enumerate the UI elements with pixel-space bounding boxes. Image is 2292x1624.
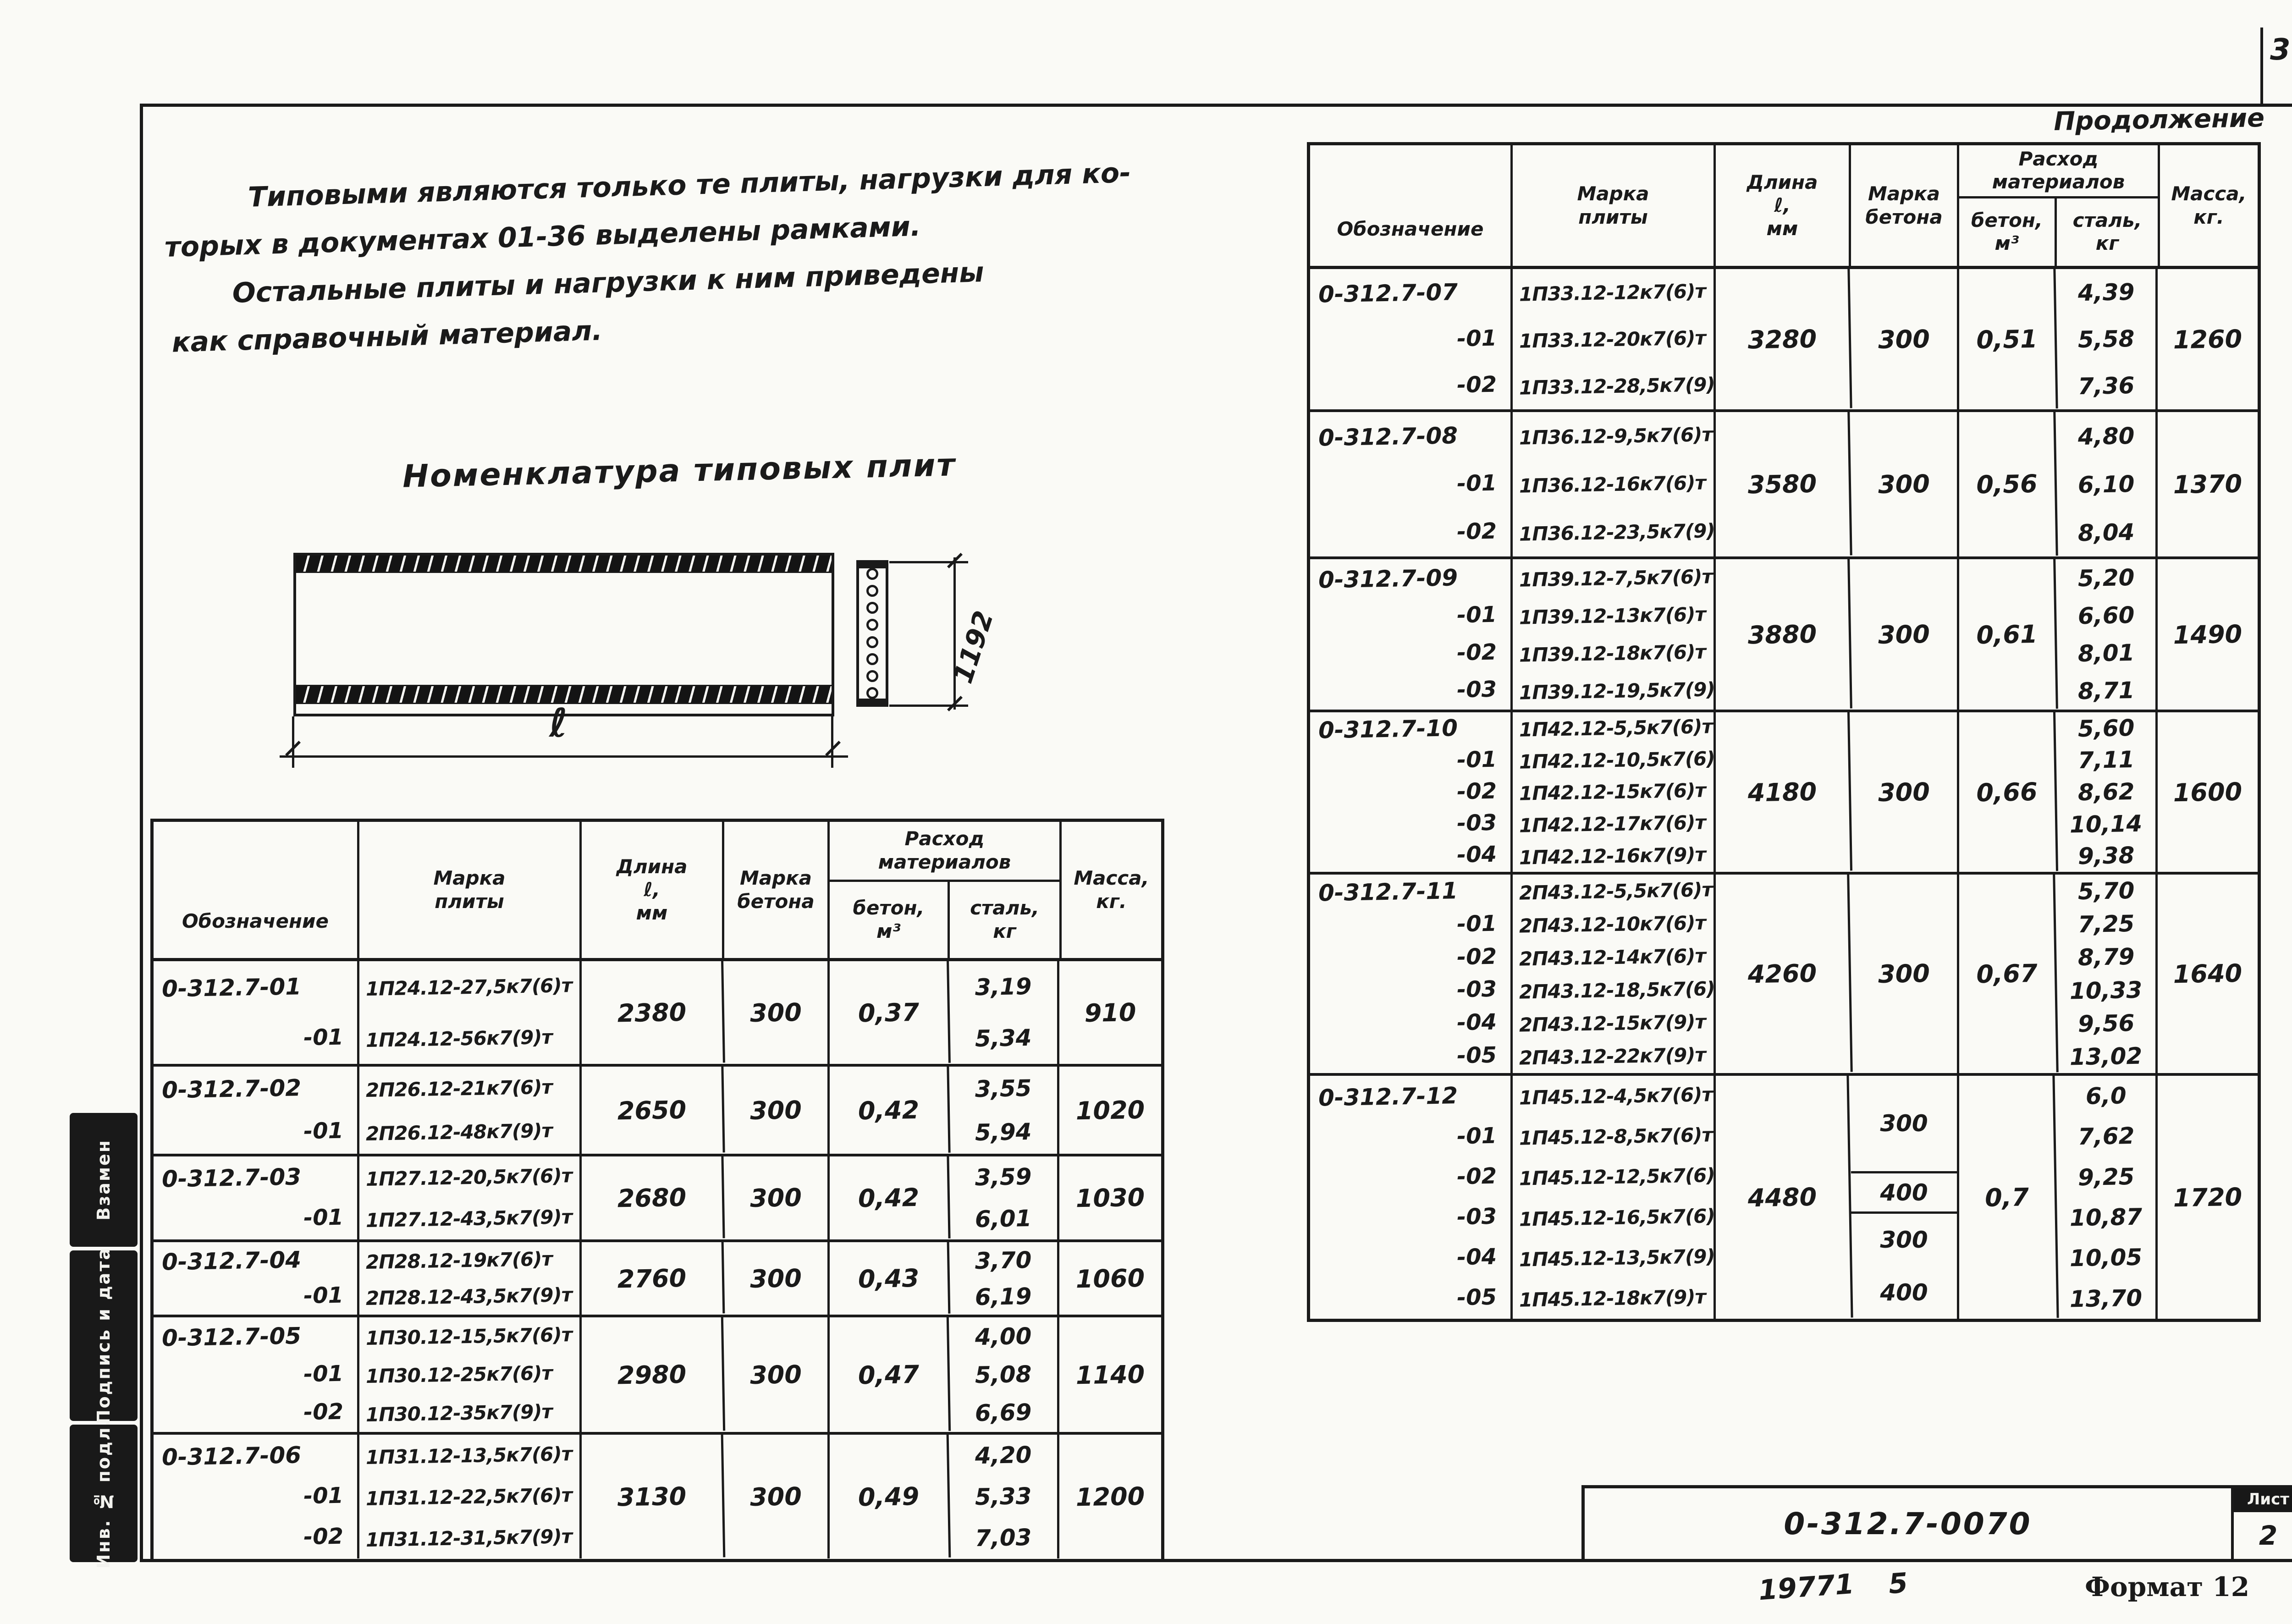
steel-value: 9,56 [2077, 1010, 2134, 1037]
steel-value: 4,80 [2077, 422, 2134, 450]
steel-value: 5,08 [975, 1361, 1032, 1388]
length-cell: 4260 [1714, 873, 1853, 1074]
hollow-core [866, 602, 878, 614]
plate-mark: 2П43.12-18,5к7(6)т [1513, 977, 1713, 1003]
mass-cell: 910 [1058, 960, 1162, 1065]
header-line: бетон, [1971, 209, 2043, 232]
plate-mark: 2П26.12-48к7(9)т [359, 1119, 579, 1145]
concrete-grade-value: 300 [724, 1067, 828, 1154]
mark-cell: 1П30.12-15,5к7(6)т1П30.12-25к7(6)т1П30.1… [359, 1317, 582, 1432]
mark-header: Маркаплиты [359, 822, 582, 958]
format-label: Формат 12 [2085, 1571, 2249, 1602]
plate-mark: 1П42.12-10,5к7(6)т [1513, 747, 1713, 773]
header-line: кг. [1096, 890, 1126, 913]
steel-value: 5,58 [2077, 325, 2134, 353]
header-line: м³ [1995, 232, 2019, 255]
mark-cell: 1П45.12-4,5к7(6)т1П45.12-8,5к7(6)т1П45.1… [1513, 1076, 1716, 1319]
steel-value: 9,38 [2077, 842, 2134, 870]
extension-line [889, 705, 968, 707]
steel-cell: 4,806,108,04 [2057, 412, 2158, 556]
header-line: сталь, [970, 897, 1039, 919]
header-line: Марка [1868, 182, 1940, 205]
designation-cell: 0-312.7-07-01-02 [1310, 269, 1513, 409]
steel-subheader: сталь,кг [2057, 198, 2158, 266]
designation-suffix: -01 [1310, 910, 1510, 940]
steel-value: 7,11 [2077, 746, 2134, 774]
plates-table-left: Обозначение Маркаплиты Длинаℓ,мм Маркабе… [150, 819, 1164, 1562]
length-cell: 3280 [1714, 268, 1852, 410]
mark-cell: 1П27.12-20,5к7(6)т1П27.12-43,5к7(9)т [359, 1156, 582, 1239]
header-line: Расход [905, 827, 985, 850]
concrete-grade-cell: 300 [1851, 712, 1959, 872]
hatch-band-top [296, 556, 832, 573]
plates-table-right: Обозначение Маркаплиты Длинаℓ,мм Маркабе… [1307, 142, 2261, 1322]
steel-cell: 3,555,94 [950, 1067, 1059, 1154]
steel-value: 13,02 [2070, 1042, 2143, 1070]
plate-mark: 1П42.12-16к7(9)т [1513, 843, 1713, 869]
concrete-grade-cell: 300 [1851, 875, 1959, 1073]
hollow-core [866, 636, 878, 648]
concrete-volume-cell: 0,51 [1958, 268, 2058, 410]
slab-plan-view [293, 553, 834, 716]
concrete-grade-value: 300 [1851, 412, 1958, 556]
plate-mark: 2П28.12-19к7(6)т [359, 1247, 579, 1273]
designation-cell: 0-312.7-04-01 [154, 1242, 359, 1315]
designation-suffix: -05 [1310, 1284, 1510, 1313]
mass-cell: 1200 [1058, 1434, 1163, 1559]
plate-mark: 2П43.12-14к7(6)т [1513, 944, 1713, 970]
plate-mark: 1П27.12-20,5к7(6)т [359, 1164, 579, 1190]
plate-row: 0-312.7-04-01 2П28.12-19к7(6)т2П28.12-43… [154, 1242, 1161, 1317]
sheet-number: 2 [2234, 1512, 2292, 1559]
steel-cell: 6,07,629,2510,8710,0513,70 [2057, 1076, 2158, 1319]
designation-suffix: -01 [1310, 601, 1510, 631]
concrete-volume-cell: 0,37 [829, 960, 951, 1065]
concrete-grade-value: 400 [1851, 1173, 1957, 1214]
designation-cell: 0-312.7-01-01 [154, 961, 359, 1064]
header-line: Марка [740, 867, 812, 890]
plate-mark: 1П27.12-43,5к7(9)т [359, 1206, 579, 1232]
margin-stamp-inventory: Инв. № подл. [70, 1425, 138, 1562]
mass-cell: 1600 [2156, 711, 2259, 873]
concrete-volume-cell: 0,67 [1957, 874, 2059, 1074]
mass-cell: 1140 [1058, 1316, 1162, 1433]
concrete-grade-value: 300 [1851, 1214, 1957, 1266]
plate-row: 0-312.7-12-01-02-03-04-05 1П45.12-4,5к7(… [1310, 1076, 2258, 1319]
plate-row: 0-312.7-02-01 2П26.12-21к7(6)т2П26.12-48… [154, 1067, 1161, 1156]
designation-cell: 0-312.7-03-01 [154, 1156, 359, 1239]
designation-suffix: -01 [1310, 470, 1510, 500]
mass-cell: 1260 [2156, 268, 2259, 410]
concrete-volume-cell: 0,42 [829, 1066, 950, 1155]
concrete-grade-cell: 300 [724, 1067, 830, 1154]
plate-row: 0-312.7-01-01 1П24.12-27,5к7(6)т1П24.12-… [154, 961, 1161, 1067]
mass-header: Масса,кг. [1062, 822, 1161, 958]
designation-cell: 0-312.7-05-01-02 [154, 1317, 359, 1432]
mark-cell: 1П33.12-12к7(6)т1П33.12-20к7(6)т1П33.12-… [1513, 269, 1716, 409]
concrete-volume-cell: 0,49 [829, 1434, 951, 1560]
concrete-volume-cell: 0,61 [1958, 558, 2058, 710]
concrete-grade-value: 300 [724, 961, 828, 1064]
plate-mark: 1П45.12-4,5к7(6)т [1513, 1083, 1713, 1109]
mass-cell: 1640 [2156, 874, 2259, 1074]
designation-value: 0-312.7-06 [154, 1441, 357, 1471]
header-line: Марка [1577, 182, 1649, 205]
designation-cell: 0-312.7-09-01-02-03 [1310, 559, 1513, 710]
steel-value: 6,60 [2077, 602, 2134, 629]
designation-suffix: -03 [1310, 676, 1510, 705]
mark-cell: 1П42.12-5,5к7(6)т1П42.12-10,5к7(6)т1П42.… [1513, 712, 1716, 872]
mark-cell: 1П39.12-7,5к7(6)т1П39.12-13к7(6)т1П39.12… [1513, 559, 1716, 710]
designation-suffix: -01 [154, 1282, 357, 1311]
steel-cell: 3,195,34 [950, 961, 1059, 1064]
plate-row: 0-312.7-10-01-02-03-04 1П42.12-5,5к7(6)т… [1310, 712, 2258, 875]
hollow-core [866, 687, 878, 699]
length-cell: 2760 [581, 1241, 725, 1316]
plate-mark: 2П26.12-21к7(6)т [359, 1075, 579, 1101]
steel-value: 6,01 [975, 1205, 1032, 1233]
header-line: ℓ, [1774, 194, 1791, 217]
extension-line [831, 716, 833, 768]
steel-value: 8,71 [2077, 677, 2134, 705]
consumption-subheaders: бетон,м³ сталь,кг [830, 882, 1059, 958]
hollow-core [866, 670, 878, 682]
mass-cell: 1060 [1059, 1241, 1162, 1316]
steel-value: 3,19 [975, 973, 1032, 1001]
header-line: Расход [2019, 148, 2099, 171]
length-dimension-label: ℓ [549, 700, 568, 746]
steel-value: 6,10 [2077, 470, 2134, 498]
header-line: ℓ, [644, 878, 660, 901]
steel-value: 6,69 [975, 1399, 1032, 1426]
header-line: Масса, [1074, 867, 1149, 890]
plate-mark: 1П31.12-31,5к7(9)т [359, 1525, 579, 1551]
mark-cell: 2П28.12-19к7(6)т2П28.12-43,5к7(9)т [359, 1242, 582, 1315]
steel-value: 5,33 [975, 1483, 1032, 1510]
designation-value: 0-312.7-05 [154, 1321, 357, 1352]
concrete-grade-cell: 300 [1851, 559, 1959, 710]
plate-mark: 1П31.12-22,5к7(6)т [359, 1483, 579, 1509]
designation-suffix: -01 [154, 1360, 357, 1390]
designation-suffix: -01 [154, 1118, 357, 1147]
notes-paragraph: Типовыми являются только те плиты, нагру… [163, 145, 1282, 367]
plate-row: 0-312.7-07-01-02 1П33.12-12к7(6)т1П33.12… [1310, 269, 2258, 412]
plate-mark: 1П45.12-18к7(9)т [1513, 1285, 1713, 1311]
plate-mark: 1П45.12-12,5к7(6)т [1513, 1164, 1713, 1190]
header-line: бетона [1865, 206, 1942, 229]
header-line: мм [1767, 217, 1798, 240]
plate-mark: 1П30.12-25к7(6)т [359, 1361, 579, 1387]
table-header-row: Обозначение Маркаплиты Длинаℓ,мм Маркабе… [1310, 145, 2258, 269]
plate-mark: 1П24.12-56к7(9)т [359, 1025, 579, 1051]
concrete-subheader: бетон,м³ [1959, 198, 2057, 266]
concrete-subheader: бетон,м³ [830, 882, 950, 958]
concrete-grade-header: Маркабетона [1851, 145, 1959, 266]
designation-suffix: -01 [154, 1482, 357, 1512]
steel-value: 10,87 [2070, 1204, 2143, 1232]
hollow-core [866, 619, 878, 631]
designation-cell: 0-312.7-12-01-02-03-04-05 [1310, 1076, 1513, 1319]
concrete-grade-value: 400 [1851, 1266, 1957, 1319]
plate-mark: 1П33.12-28,5к7(9)т [1513, 373, 1713, 399]
title-block: 0-312.7-0070 Лист 2 [1581, 1485, 2292, 1562]
header-line: бетона [737, 890, 814, 913]
length-header: Длинаℓ,мм [582, 822, 724, 958]
designation-suffix: -03 [1310, 1203, 1510, 1233]
mass-cell: 1370 [2156, 411, 2259, 557]
concrete-grade-value: 300 [1851, 712, 1958, 872]
concrete-grade-cell: 300 [724, 1317, 830, 1432]
header-line: Обозначение [1337, 218, 1484, 241]
plate-mark: 1П45.12-13,5к7(9)т [1513, 1245, 1713, 1271]
steel-cell: 3,596,01 [950, 1156, 1059, 1239]
concrete-volume-cell: 0,56 [1958, 411, 2058, 557]
designation-suffix: -02 [1310, 372, 1510, 401]
plate-mark: 2П28.12-43,5к7(9)т [359, 1283, 579, 1310]
plate-mark: 2П43.12-10к7(6)т [1513, 911, 1713, 937]
concrete-volume-cell: 0,42 [829, 1156, 950, 1241]
header-line: бетон, [853, 897, 925, 919]
designation-suffix: -02 [1310, 778, 1510, 807]
steel-value: 7,03 [975, 1524, 1032, 1552]
length-cell: 3880 [1714, 558, 1852, 710]
designation-value: 0-312.7-04 [154, 1245, 357, 1276]
plate-mark: 1П39.12-18к7(6)т [1513, 640, 1713, 666]
length-cell: 2980 [581, 1316, 725, 1433]
designation-suffix: -01 [1310, 746, 1510, 776]
plate-mark: 1П42.12-17к7(6)т [1513, 811, 1713, 837]
designation-value: 0-312.7-12 [1310, 1081, 1510, 1112]
steel-cell: 4,205,337,03 [950, 1435, 1059, 1558]
steel-value: 7,25 [2077, 910, 2134, 938]
plate-mark: 1П30.12-15,5к7(6)т [359, 1323, 579, 1349]
concrete-volume-cell: 0,66 [1958, 711, 2058, 873]
header-line: кг [993, 920, 1016, 943]
steel-value: 8,04 [2077, 518, 2134, 546]
steel-cell: 5,206,608,018,71 [2057, 559, 2158, 710]
section-cap [859, 699, 886, 704]
plate-row: 0-312.7-05-01-02 1П30.12-15,5к7(6)т1П30.… [154, 1317, 1161, 1435]
margin-stamp-label: Инв. № подл. [94, 1418, 114, 1569]
length-cell: 2650 [581, 1065, 725, 1155]
margin-stamp-label: Взамен [94, 1139, 114, 1221]
frame-corner-line [2260, 28, 2263, 104]
footer-sheet-code: 5 [1888, 1567, 1909, 1601]
steel-value: 13,70 [2070, 1284, 2143, 1312]
steel-cell: 4,395,587,36 [2057, 269, 2158, 409]
plate-mark: 1П42.12-15к7(6)т [1513, 779, 1713, 805]
concrete-volume-cell: 0,7 [1957, 1075, 2059, 1320]
plate-mark: 2П43.12-5,5к7(6)т [1513, 878, 1713, 904]
page-number: 3 [2270, 33, 2291, 67]
concrete-grade-value: 300 [1851, 269, 1958, 409]
designation-header: Обозначение [154, 822, 359, 958]
footer-order-code: 19771 [1758, 1568, 1855, 1607]
steel-value: 6,0 [2086, 1082, 2127, 1110]
mass-cell: 1030 [1058, 1156, 1162, 1240]
section-cap [859, 563, 886, 568]
consumption-header: Расходматериалов бетон,м³ сталь,кг [1959, 145, 2160, 266]
steel-value: 4,39 [2077, 279, 2134, 306]
mass-cell: 1720 [2155, 1075, 2259, 1320]
steel-value: 3,59 [975, 1163, 1032, 1191]
plate-row: 0-312.7-03-01 1П27.12-20,5к7(6)т1П27.12-… [154, 1156, 1161, 1242]
steel-value: 8,01 [2077, 639, 2134, 667]
designation-suffix: -03 [1310, 809, 1510, 839]
designation-suffix: -01 [154, 1204, 357, 1233]
extension-line [292, 716, 294, 768]
header-line: Длина [1747, 171, 1818, 194]
hollow-core [866, 653, 878, 665]
steel-value: 5,94 [975, 1118, 1032, 1145]
length-header: Длинаℓ,мм [1716, 145, 1851, 266]
plate-mark: 1П33.12-20к7(6)т [1513, 326, 1713, 352]
designation-suffix: -04 [1310, 842, 1510, 871]
steel-value: 10,14 [2070, 810, 2143, 838]
mark-cell: 1П31.12-13,5к7(6)т1П31.12-22,5к7(6)т1П31… [359, 1435, 582, 1558]
header-line: кг [2096, 232, 2119, 255]
extension-line [889, 561, 968, 563]
plate-mark: 1П33.12-12к7(6)т [1513, 280, 1713, 306]
plate-mark: 1П45.12-16,5к7(6)т [1513, 1205, 1713, 1231]
plate-mark: 1П45.12-8,5к7(6)т [1513, 1123, 1713, 1150]
steel-cell: 5,707,258,7910,339,5613,02 [2057, 875, 2158, 1073]
designation-suffix: -03 [1310, 976, 1510, 1006]
margin-stamp-signature-date: Подпись и дата [70, 1250, 138, 1421]
plate-mark: 1П31.12-13,5к7(6)т [359, 1442, 579, 1468]
concrete-grade-cell: 300 [724, 1156, 830, 1239]
designation-value: 0-312.7-11 [1310, 876, 1510, 907]
designation-value: 0-312.7-08 [1310, 421, 1510, 451]
plate-mark: 1П30.12-35к7(9)т [359, 1400, 579, 1426]
steel-value: 7,36 [2077, 372, 2134, 400]
table-header-row: Обозначение Маркаплиты Длинаℓ,мм Маркабе… [154, 822, 1161, 961]
steel-value: 8,79 [2077, 943, 2134, 971]
concrete-grade-cell: 300400300400 [1851, 1076, 1959, 1319]
steel-value: 3,70 [975, 1246, 1032, 1274]
concrete-grade-header: Маркабетона [724, 822, 830, 958]
designation-suffix: -05 [1310, 1042, 1510, 1071]
designation-suffix: -02 [1310, 1163, 1510, 1192]
steel-value: 6,19 [975, 1283, 1032, 1310]
header-line: Масса, [2171, 182, 2246, 205]
designation-suffix: -04 [1310, 1244, 1510, 1273]
length-cell: 4180 [1714, 711, 1852, 873]
margin-stamp-vzamen: Взамен [70, 1113, 138, 1247]
designation-value: 0-312.7-01 [154, 972, 357, 1002]
consumption-header-title: Расходматериалов [830, 822, 1059, 882]
steel-value: 3,55 [975, 1074, 1032, 1102]
consumption-header-title: Расходматериалов [1959, 145, 2158, 198]
hollow-core [866, 585, 878, 597]
concrete-grade-value: 300 [724, 1242, 828, 1315]
designation-value: 0-312.7-10 [1310, 714, 1510, 744]
steel-value: 5,20 [2077, 564, 2134, 592]
header-line: плиты [1578, 206, 1648, 229]
continuation-label: Продолжение [1998, 103, 2264, 138]
slab-section-view [856, 560, 888, 707]
steel-cell: 3,706,19 [950, 1242, 1059, 1315]
plate-mark: 1П39.12-7,5к7(6)т [1513, 565, 1713, 591]
dimension-line-length [280, 755, 848, 758]
designation-value: 0-312.7-07 [1310, 278, 1510, 308]
designation-cell: 0-312.7-06-01-02 [154, 1435, 359, 1558]
designation-suffix: -04 [1310, 1009, 1510, 1038]
concrete-grade-cell: 300 [1851, 412, 1959, 556]
plate-row: 0-312.7-09-01-02-03 1П39.12-7,5к7(6)т1П3… [1310, 559, 2258, 712]
margin-stamp-label: Подпись и дата [94, 1247, 114, 1424]
designation-header: Обозначение [1310, 145, 1513, 266]
plate-mark: 1П36.12-23,5к7(9)т [1513, 519, 1713, 545]
steel-value: 7,62 [2077, 1123, 2134, 1150]
mark-cell: 2П43.12-5,5к7(6)т2П43.12-10к7(6)т2П43.12… [1513, 875, 1716, 1073]
steel-cell: 4,005,086,69 [950, 1317, 1059, 1432]
length-cell: 3580 [1714, 411, 1852, 557]
designation-cell: 0-312.7-10-01-02-03-04 [1310, 712, 1513, 872]
designation-cell: 0-312.7-08-01-02 [1310, 412, 1513, 556]
concrete-grade-value: 300 [724, 1435, 828, 1558]
dimension-line-width [953, 557, 956, 710]
mark-cell: 1П36.12-9,5к7(6)т1П36.12-16к7(6)т1П36.12… [1513, 412, 1716, 556]
consumption-subheaders: бетон,м³ сталь,кг [1959, 198, 2158, 266]
header-line: м³ [876, 920, 901, 943]
concrete-grade-value: 300 [724, 1156, 828, 1239]
header-line: материалов [1992, 171, 2125, 193]
steel-value: 9,25 [2077, 1163, 2134, 1191]
steel-value: 5,60 [2077, 715, 2134, 742]
steel-value: 8,62 [2077, 778, 2134, 806]
plate-mark: 1П36.12-9,5к7(6)т [1513, 423, 1713, 449]
header-line: Длина [617, 855, 688, 878]
length-cell: 2680 [581, 1155, 725, 1240]
designation-suffix: -01 [1310, 1123, 1510, 1152]
header-line: Обозначение [182, 910, 329, 933]
designation-cell: 0-312.7-11-01-02-03-04-05 [1310, 875, 1513, 1073]
concrete-grade-split: 300400300400 [1851, 1076, 1957, 1319]
designation-value: 0-312.7-09 [1310, 563, 1510, 594]
concrete-grade-value: 300 [1851, 559, 1958, 710]
designation-suffix: -02 [1310, 943, 1510, 973]
mass-cell: 1490 [2156, 558, 2259, 710]
concrete-grade-cell: 300 [724, 1242, 830, 1315]
designation-value: 0-312.7-02 [154, 1073, 357, 1104]
designation-suffix: -02 [154, 1523, 357, 1552]
length-cell: 2380 [581, 960, 725, 1065]
steel-subheader: сталь,кг [950, 882, 1059, 958]
header-line: материалов [878, 851, 1011, 874]
steel-value: 4,20 [975, 1442, 1032, 1469]
concrete-grade-value: 300 [1851, 875, 1959, 1073]
sheet-column: Лист 2 [2234, 1488, 2292, 1559]
concrete-grade-cell: 300 [724, 961, 830, 1064]
header-line: плиты [435, 890, 504, 913]
header-line: сталь, [2073, 209, 2142, 232]
plate-mark: 1П24.12-27,5к7(6)т [359, 974, 579, 1000]
plate-mark: 1П39.12-13к7(6)т [1513, 603, 1713, 629]
hollow-core [866, 568, 878, 580]
plate-row: 0-312.7-11-01-02-03-04-05 2П43.12-5,5к7(… [1310, 875, 2258, 1076]
designation-cell: 0-312.7-02-01 [154, 1067, 359, 1154]
plate-row: 0-312.7-08-01-02 1П36.12-9,5к7(6)т1П36.1… [1310, 412, 2258, 559]
header-line: Марка [433, 867, 505, 890]
header-line: кг. [2193, 206, 2224, 229]
designation-value: 0-312.7-03 [154, 1162, 357, 1193]
steel-value: 10,33 [2070, 976, 2143, 1004]
mass-header: Масса,кг. [2160, 145, 2258, 266]
concrete-grade-value: 300 [1851, 1076, 1957, 1173]
designation-suffix: -02 [154, 1398, 357, 1428]
steel-cell: 5,607,118,6210,149,38 [2057, 712, 2158, 872]
